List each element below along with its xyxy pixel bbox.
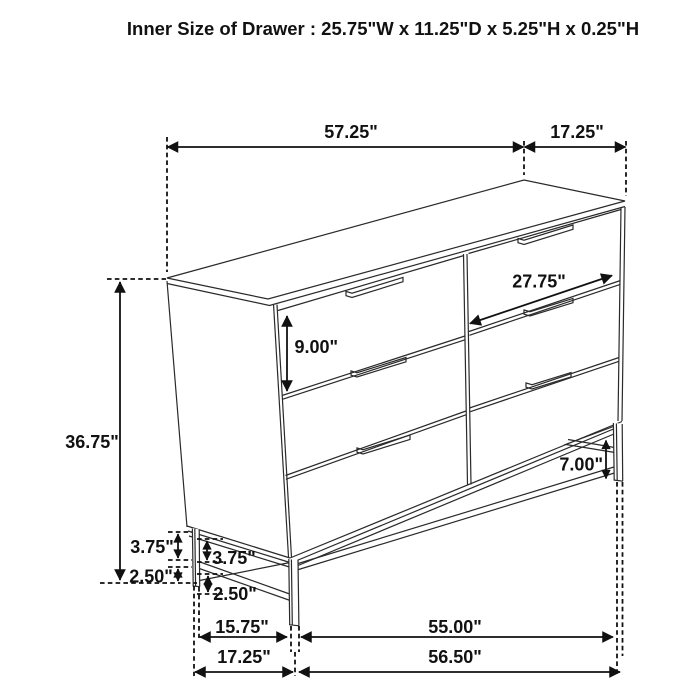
- svg-text:56.50": 56.50": [428, 647, 482, 667]
- svg-text:3.75": 3.75": [212, 548, 256, 568]
- svg-text:3.75": 3.75": [130, 537, 174, 557]
- svg-text:2.50": 2.50": [213, 584, 257, 604]
- svg-text:55.00": 55.00": [428, 617, 482, 637]
- svg-text:2.50": 2.50": [129, 567, 173, 587]
- svg-text:57.25": 57.25": [324, 122, 378, 142]
- svg-text:15.75": 15.75": [215, 617, 269, 637]
- svg-text:Inner Size of Drawer : 25.75"W: Inner Size of Drawer : 25.75"W x 11.25"D…: [127, 18, 639, 39]
- svg-text:7.00": 7.00": [559, 455, 603, 475]
- svg-text:17.25": 17.25": [217, 647, 271, 667]
- svg-text:36.75": 36.75": [65, 432, 119, 452]
- svg-text:17.25": 17.25": [550, 122, 604, 142]
- svg-text:27.75": 27.75": [512, 272, 566, 292]
- svg-text:9.00": 9.00": [295, 337, 339, 357]
